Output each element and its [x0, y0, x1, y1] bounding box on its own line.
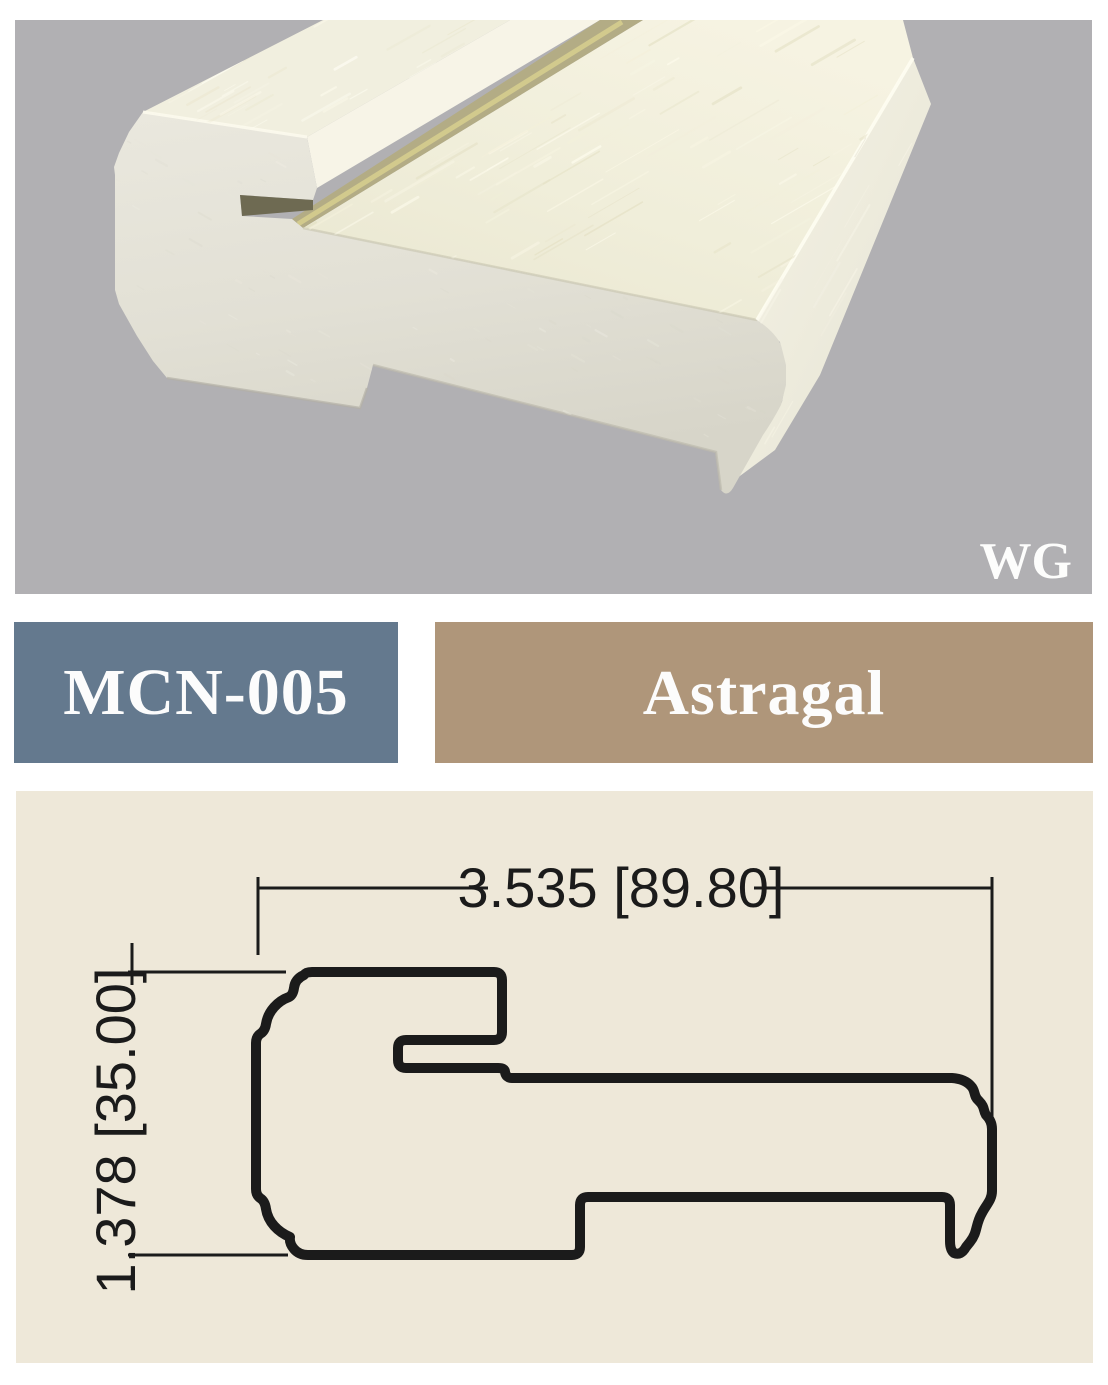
technical-drawing-panel: 3.535 [89.80] 1.378 [35.00] — [16, 791, 1093, 1363]
molding-photo-illustration: WG — [15, 20, 1092, 594]
product-sheet: { "photo": { "watermark": "WG", "backgro… — [0, 0, 1108, 1385]
product-photo-panel: WG — [15, 20, 1092, 594]
width-dimension-text: 3.535 [89.80] — [458, 856, 785, 919]
product-code-badge: MCN-005 — [14, 622, 398, 763]
product-code-text: MCN-005 — [63, 655, 349, 731]
profile-outline — [256, 972, 992, 1255]
label-row: MCN-005 Astragal — [0, 622, 1108, 763]
profile-drawing: 3.535 [89.80] 1.378 [35.00] — [16, 791, 1093, 1363]
watermark-text: WG — [980, 533, 1072, 590]
height-dimension-lines — [128, 943, 288, 1288]
profile-name-badge: Astragal — [435, 622, 1093, 763]
profile-name-text: Astragal — [643, 656, 886, 730]
height-dimension-text: 1.378 [35.00] — [84, 968, 147, 1295]
